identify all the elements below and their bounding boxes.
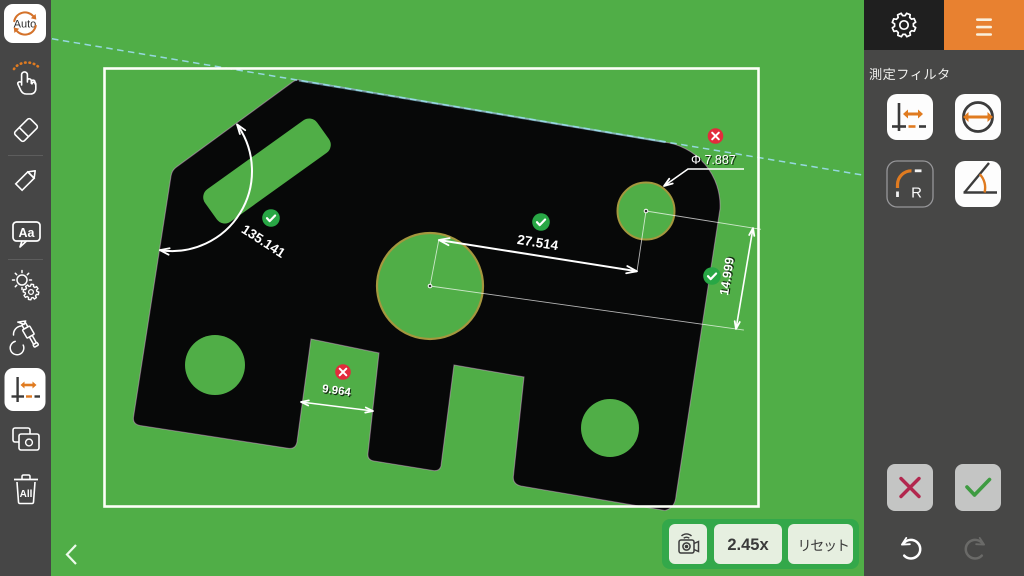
svg-text:2.45x: 2.45x	[727, 536, 769, 554]
svg-text:R: R	[911, 185, 922, 202]
svg-text:Aa: Aa	[19, 226, 36, 240]
svg-text:All: All	[20, 489, 33, 500]
svg-text:Φ 7.887: Φ 7.887	[691, 153, 736, 167]
